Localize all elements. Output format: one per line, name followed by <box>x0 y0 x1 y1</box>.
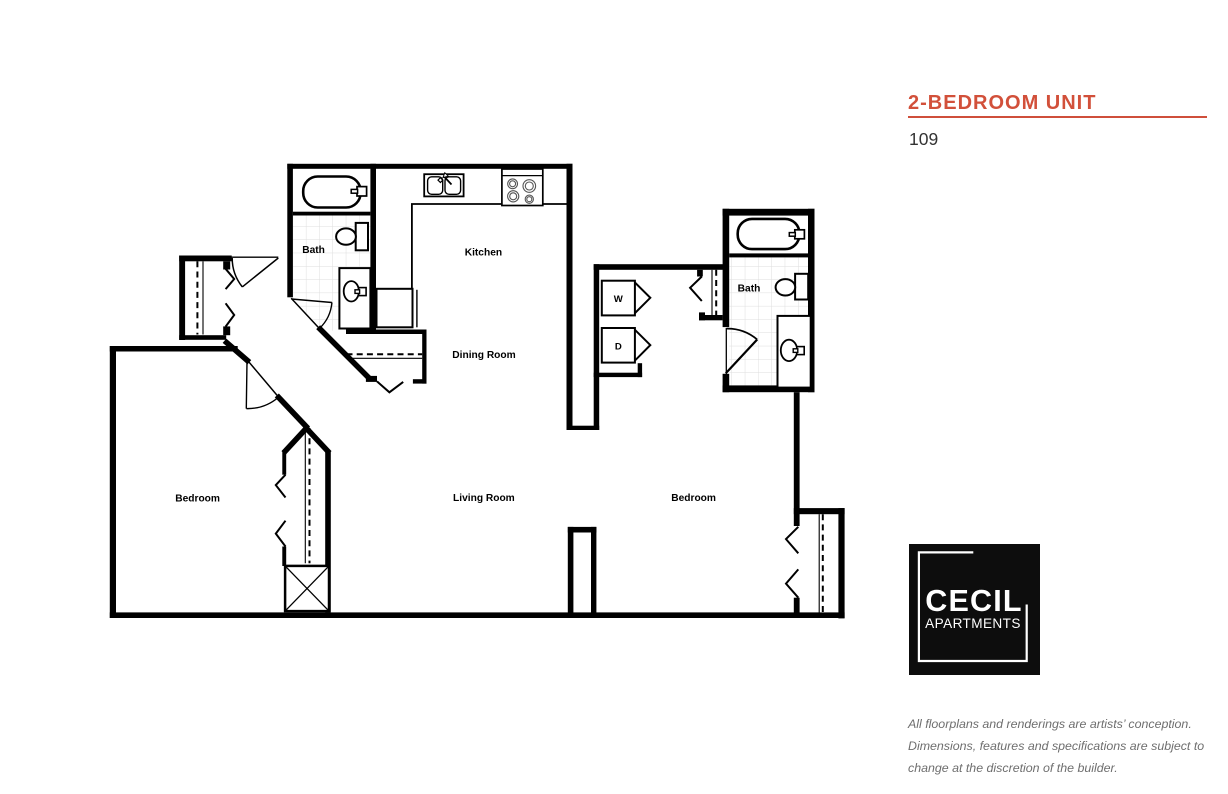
svg-text:Bedroom: Bedroom <box>671 493 716 504</box>
svg-text:Living Room: Living Room <box>453 493 515 504</box>
svg-text:D: D <box>615 341 622 352</box>
svg-text:W: W <box>614 294 624 305</box>
svg-text:Dining Room: Dining Room <box>452 350 515 361</box>
svg-text:Bedroom: Bedroom <box>175 493 220 504</box>
svg-text:Bath: Bath <box>302 245 325 256</box>
svg-text:Kitchen: Kitchen <box>465 247 502 258</box>
svg-text:Bath: Bath <box>738 283 761 294</box>
